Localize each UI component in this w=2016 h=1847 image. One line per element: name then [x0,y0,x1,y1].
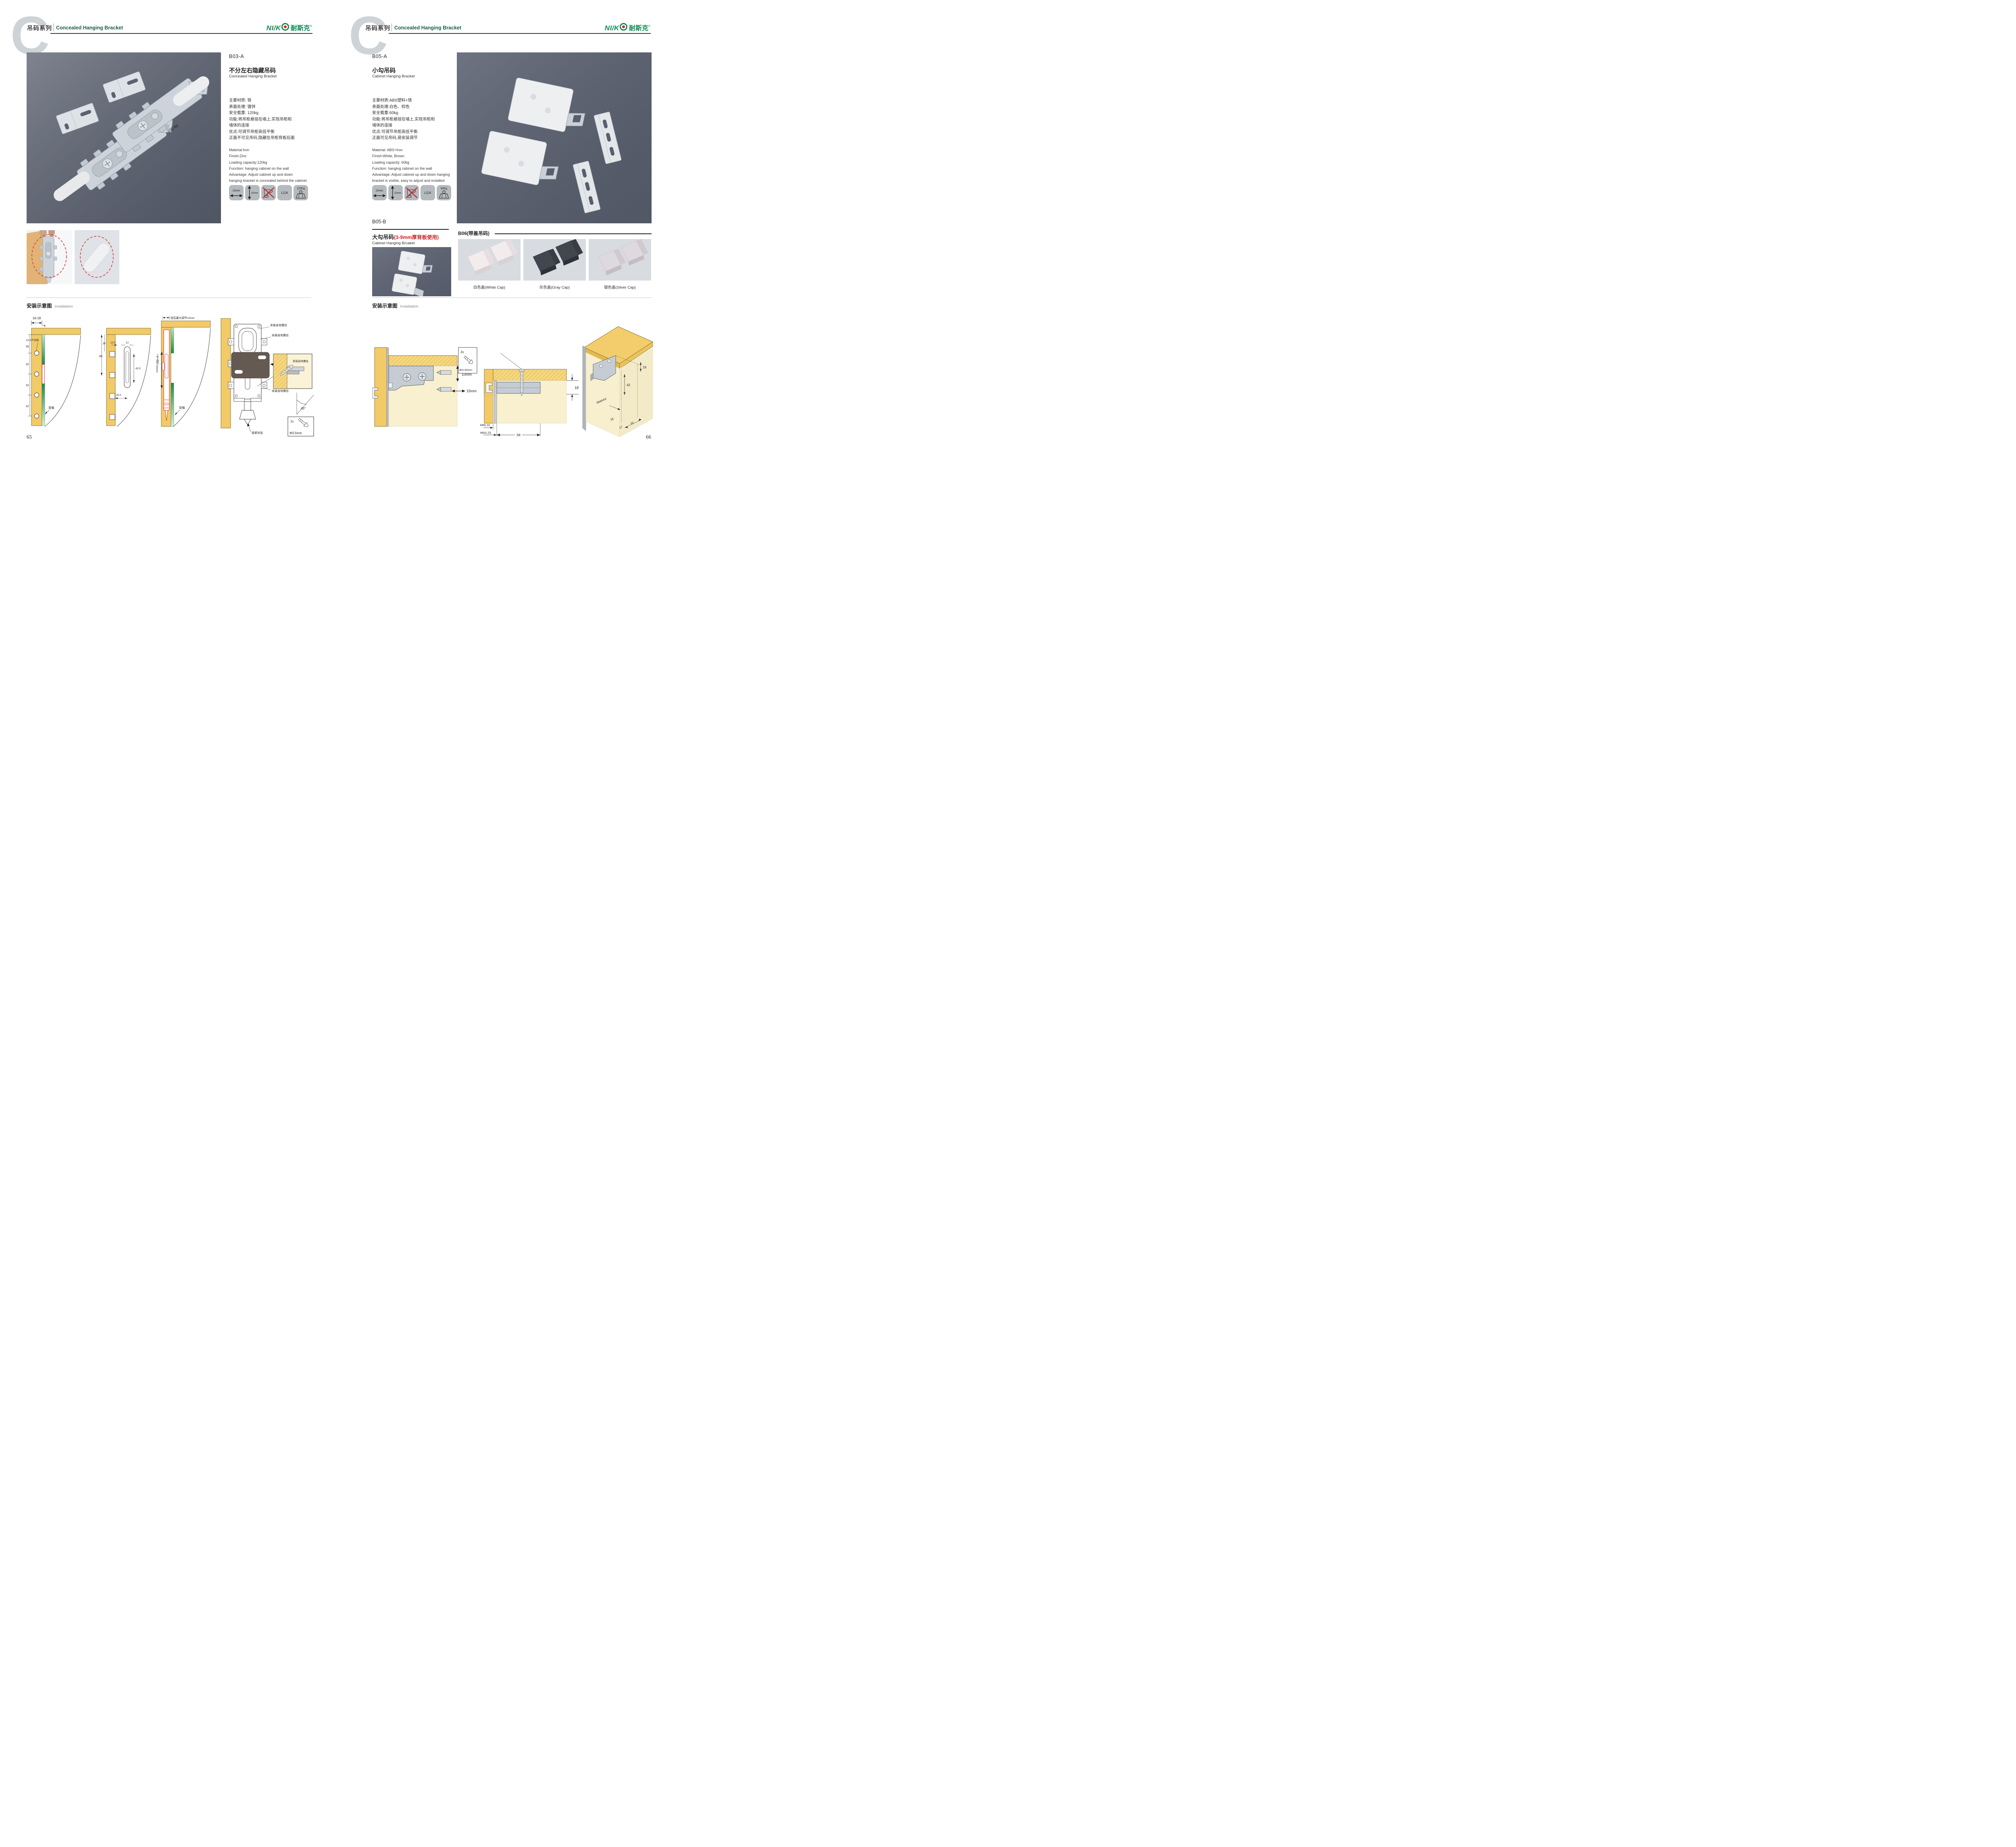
screw-size: Φ3.5mm [289,431,302,435]
install-diagram-hole-spacing: 16-18 5 35 32 [26,315,86,432]
series-divider [392,23,392,31]
page-number: 65 [27,434,32,440]
product-photo-b03a: 100 kg [27,52,221,223]
callout-holes: 10-4个均布 [26,338,39,342]
spec-line: Loading capacity:120kg [229,160,315,166]
spec-line: Finish:White, Brown [372,153,458,159]
spec-line: 安全载重:60kg [372,110,458,116]
page-66: C 吊码系列 Concealed Hanging Bracket NI/K耐斯克… [338,0,676,462]
product-name-en: Concealed Hanging Bracket [229,74,315,79]
installation-title-en: Installation [400,304,419,309]
logo-text-cn: 耐斯克 [291,25,310,32]
logo-text-cn: 耐斯克 [629,25,648,32]
registered-mark: ® [310,25,312,28]
spec-line: 功能:将吊柜悬挂在墙上,实现吊柜和 [229,116,315,123]
back-panel-label: 背板 [179,406,185,410]
brand-logo: NI/K耐斯克® [605,23,650,32]
product-photo-b03a-graphic: 100 kg [27,52,221,223]
spec-line: 正面不可见吊码,隐藏在吊柜背板后面 [229,135,315,141]
section-divider [372,297,652,298]
screw-size: Φ4×30mm [459,369,472,372]
dim-max23: MAX.23 [480,431,491,435]
catalog-spread: C 吊码系列 Concealed Hanging Bracket NI/K耐斯克… [0,0,676,462]
spec-line: 表面处理:白色、棕色 [372,104,458,110]
width-adjust-icon: 10mm [229,185,244,200]
spec-line: Finish:Zinc [229,153,315,159]
dim-32: 32 [26,405,29,408]
screw-qty: 1x [290,420,294,423]
front-back-adjust-label: 前后最大调节10mm [171,316,195,320]
cap-photo-gray [523,239,586,281]
series-title-cn: 吊码系列 [365,24,390,32]
spec-line: 优点:可调节吊柜高低平衡 [229,129,315,135]
dim-58: 58 [516,433,521,437]
spec-line: Function: hanging cabinet on the wall [372,166,458,172]
dim-min10: MIN.10 [480,423,490,427]
spec-line: 安全载重: 120kg [229,110,315,116]
dim-12: 12 [126,341,129,344]
page-65: C 吊码系列 Concealed Hanging Bracket NI/K耐斯克… [0,0,338,462]
product-name-cn: 不分左右隐藏吊码 [229,66,315,75]
spec-line: Loading capacity: 60kg [372,160,458,166]
installation-title-en: Installation [55,304,73,309]
install-diagram-perspective: 16 42 RMAX4 16 17 32 [581,322,656,442]
detail-inset: 安装自攻螺丝 [273,354,312,389]
product-code: B05-A [372,54,458,59]
cap-label-silver: 银色盖(Silver Cap) [589,284,651,290]
install-photo-cap-graphic [75,230,119,284]
installation-title: 安装示意图Installation [27,302,73,310]
product-specs-cn: 主要材质: 铁 表面处理: 镀锌 安全载重: 120kg 功能:将吊柜悬挂在墙上… [229,98,315,141]
lga-label: LGA [425,191,431,195]
product-photo-b05a-graphic [457,52,652,223]
dim-16-18: 16-18 [33,316,41,320]
dim-60: 60 [99,355,102,358]
install-diagram-adjustment: 前后最大调节10mm 上下调节10mm [156,315,215,432]
install-diagram-top-section: 18 MIN.10 MAX.23 58 [480,352,581,437]
detail-screw-label: 安装自攻螺丝 [293,359,309,363]
logo-text-k: K [276,24,281,32]
page-number: 66 [646,434,651,440]
spec-line: Material: ABS+Iron [372,147,458,153]
product-name-b05b: 大勾吊码(3-9mm厚背板使用) [372,233,439,241]
load-capacity-icon: 60Kg [437,185,451,200]
logo-text-ni: NI [267,24,274,32]
dim-16-top: 16 [643,366,646,369]
spec-line: 墙体的连接 [229,123,315,129]
cap-label-gray: 灰色盖(Gray Cap) [523,284,586,290]
height-adjust-icon: 10mm [388,185,403,200]
brand-logo: NI/K耐斯克® [267,23,312,32]
screw-label-2: 安装自攻螺丝 [272,333,289,337]
header-rule [389,33,651,34]
product-name-note: (3-9mm厚背板使用) [394,235,439,240]
cap-item-gray: 灰色盖(Gray Cap) [523,239,586,290]
installation-title-cn: 安装示意图 [372,303,398,309]
logo-text-k: K [614,24,619,32]
lga-icon: LGA [421,185,435,200]
logo-o-icon [620,23,627,31]
header-rule [50,33,312,34]
installation-title-cn: 安装示意图 [27,303,52,309]
width-adjust-label: 10mm [232,189,240,192]
spec-line: Function: hanging cabinet on the wall [229,166,315,172]
spec-line: 主要材质: 铁 [229,98,315,104]
b06-label: B06(带盖吊码) [458,230,489,237]
spec-line: 主要材质:ABS塑料+铁 [372,98,458,104]
product-code: B03-A [229,54,315,59]
spec-line: bracket is visible, easy to adjust and i… [372,178,458,184]
height-adjust-label: 10mm [394,192,401,195]
b05b-underline [372,229,449,230]
dim-32: 32 [26,384,29,387]
screw-legend: 1x Φ3.5mm [288,417,314,436]
install-diagram-bracket-detail: 安装自攻螺丝 安装自攻螺丝 安装自攻螺丝 专用挂片 锁紧状态 [218,315,329,438]
install-diagram-wall-section: 10mm 15mm 2x Φ4×30mm [372,346,478,431]
hanging-plate [231,352,269,378]
install-photo-cap [75,230,119,284]
product-name-cn: 小勾吊码 [372,66,458,75]
spec-line: Advantage: Adjust cabinet up and down ha… [372,172,458,178]
spec-line: 表面处理: 镀锌 [229,104,315,110]
no-drill-icon [261,185,276,200]
spec-line: Advantage: Adjust cabinet up and down [229,172,315,178]
series-title-en: Concealed Hanging Bracket [56,25,123,31]
lga-icon: LGA [277,185,292,200]
load-capacity-label: 60Kg [441,187,447,190]
load-capacity-icon: 120Kg [294,185,308,200]
load-capacity-label: 120Kg [297,187,305,190]
product-name-cn: 大勾吊码 [372,234,394,240]
h-adjust-label: 15mm [467,389,477,393]
product-photo-b05a [457,52,652,223]
cap-photo-silver [589,239,651,281]
back-panel-label: 背板 [48,406,54,410]
lga-label: LGA [281,191,288,195]
logo-text-ni: NI [605,24,612,32]
cap-item-silver: 银色盖(Silver Cap) [589,239,651,290]
spec-line: hanging bracket is concealed behind the … [229,178,315,184]
installation-title: 安装示意图Installation [372,302,419,310]
height-adjust-label: 10mm [251,192,258,195]
angle-45: 45° [301,407,306,410]
dim-18: 18 [575,386,579,390]
registered-mark: ® [648,25,650,28]
series-title-en: Concealed Hanging Bracket [394,25,461,31]
screw-label-1: 安装自攻螺丝 [270,323,287,327]
product-photo-b05b-graphic [372,247,451,296]
lock-state-label: 锁紧状态 [252,431,263,435]
logo-o-icon [281,23,289,31]
dim-42: 42 [627,383,630,387]
product-specs-en: Material: ABS+Iron Finish:White, Brown L… [372,147,458,184]
install-photo-bracket [27,230,72,284]
spec-line: 正面可见吊码,易安装调节 [372,135,458,141]
install-diagram-slot-dims: 60 35 12.5 12 42.5 20.5 [99,315,154,432]
screw-qty: 2x [460,350,464,354]
dim-32: 32 [26,363,29,366]
series-divider [53,23,54,31]
product-code-b05b: B05-B [372,219,386,225]
product-specs-cn: 主要材质:ABS塑料+铁 表面处理:白色、棕色 安全载重:60kg 功能:将吊柜… [372,98,458,141]
product-name-en-b05b: Cabinet Hanging Brcaket [372,241,415,245]
dim-20-5: 20.5 [116,394,121,397]
b06-rule [495,233,652,234]
width-adjust-label: 15mm [375,189,383,192]
cap-photo-white [458,239,521,281]
screw-legend: 2x Φ4×30mm [458,347,477,373]
cap-item-white: 白色盖(White Cap) [458,239,521,290]
spec-line: 墙体的连接 [372,123,458,129]
width-adjust-icon: 15mm [372,185,387,200]
section-divider [27,297,311,298]
product-name-en: Cabinet Hanging Bracket [372,74,458,79]
install-photo-bracket-graphic [27,230,72,284]
spec-line: Material:Iron [229,147,315,153]
cap-row: 白色盖(White Cap) 灰色盖(Gray Cap) [458,239,651,290]
dim-12-5: 12.5 [110,341,116,344]
cap-label-white: 白色盖(White Cap) [458,284,521,290]
dim-35: 35 [26,345,29,348]
no-drill-icon [404,185,419,200]
spec-icon-row: 10mm 10mm LGA 120Kg [229,185,308,200]
series-title-cn: 吊码系列 [27,24,52,32]
up-down-adjust-label: 上下调节10mm [156,354,159,372]
height-adjust-icon: 10mm [245,185,260,200]
spec-line: 优点:可调节吊柜高低平衡 [372,129,458,135]
dim-42-5: 42.5 [135,367,141,370]
product-photo-b05b [372,247,451,296]
product-specs-en: Material:Iron Finish:Zinc Loading capaci… [229,147,315,184]
spec-icon-row: 15mm 10mm LGA 60Kg [372,185,451,200]
spec-line: 功能:将吊柜悬挂在墙上,实现吊柜和 [372,116,458,123]
dim-35: 35 [103,342,106,345]
screw-label-3: 安装自攻螺丝 [272,389,289,393]
